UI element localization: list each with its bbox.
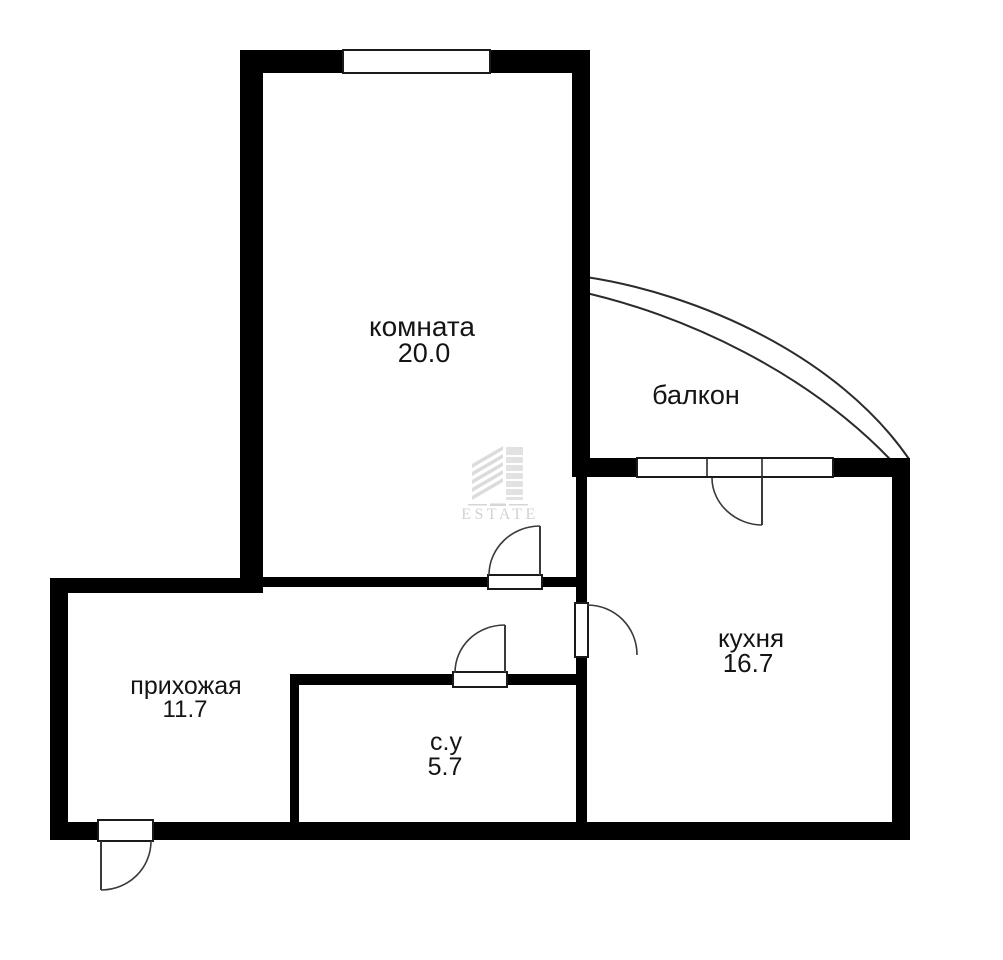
room-area-living: 20.0 bbox=[398, 338, 451, 368]
floor-plan: ESTATE комната 20.0 балкон кухня 16.7 пр… bbox=[0, 0, 1003, 960]
wall-living-bottom-left bbox=[263, 577, 488, 587]
wall-kitchen-top-left bbox=[587, 458, 637, 477]
bathroom-door-threshold bbox=[453, 672, 507, 687]
room-area-bathroom: 5.7 bbox=[428, 753, 463, 781]
wall-bathroom-left bbox=[290, 674, 299, 822]
room-area-hallway: 11.7 bbox=[163, 696, 208, 723]
room-label-bathroom: с.у bbox=[430, 728, 462, 756]
room-label-balcony: балкон bbox=[652, 380, 740, 410]
wall-bottom-left bbox=[50, 822, 98, 840]
living-door-threshold bbox=[488, 575, 542, 589]
floor-plan-drawing: ESTATE комната 20.0 балкон кухня 16.7 пр… bbox=[0, 0, 1003, 960]
watermark-brand-text: ESTATE bbox=[461, 506, 539, 523]
wall-living-left bbox=[240, 50, 263, 593]
wall-kitchen-left-lower bbox=[576, 657, 587, 822]
room-labels: комната 20.0 балкон кухня 16.7 прихожая … bbox=[130, 311, 784, 781]
wall-bottom-main bbox=[153, 822, 910, 840]
watermark-building-icon bbox=[472, 446, 523, 500]
watermark: ESTATE bbox=[461, 446, 539, 523]
wall-kitchen-left-upper bbox=[576, 477, 587, 603]
entrance-door-arc bbox=[101, 841, 151, 890]
living-door-arc bbox=[489, 526, 540, 575]
living-room-window bbox=[343, 50, 490, 73]
wall-bathroom-top-right bbox=[507, 674, 576, 685]
entrance-door-threshold bbox=[98, 820, 153, 841]
balcony-railing bbox=[577, 277, 909, 471]
wall-living-right bbox=[572, 50, 590, 477]
room-area-kitchen: 16.7 bbox=[723, 648, 774, 678]
kitchen-door-arc bbox=[587, 605, 637, 655]
wall-hallway-top bbox=[50, 578, 263, 593]
balcony-door-arc bbox=[712, 478, 762, 525]
kitchen-balcony-window bbox=[637, 458, 833, 477]
wall-hallway-left bbox=[50, 578, 68, 840]
kitchen-door-leaf bbox=[575, 603, 588, 657]
bathroom-door-arc bbox=[455, 625, 505, 673]
wall-bathroom-top-left bbox=[290, 674, 453, 685]
wall-kitchen-right bbox=[892, 458, 910, 840]
wall-living-bottom-right bbox=[542, 577, 576, 587]
